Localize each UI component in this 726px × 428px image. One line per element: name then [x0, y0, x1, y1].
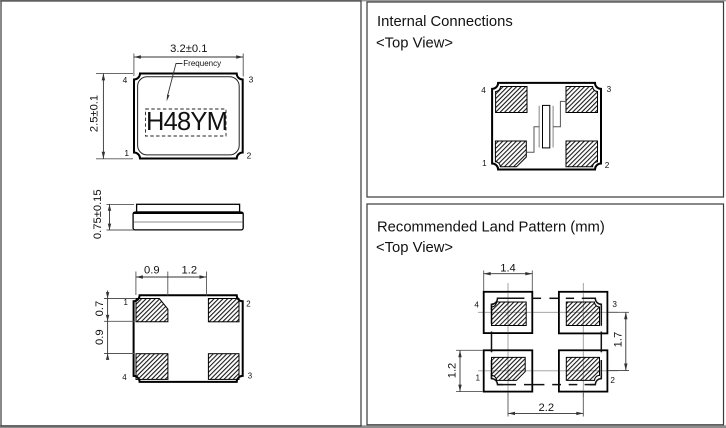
svg-text:2.2: 2.2 [539, 402, 555, 414]
svg-text:2: 2 [605, 161, 610, 170]
svg-text:Frequency: Frequency [183, 59, 221, 68]
svg-text:1: 1 [476, 374, 481, 383]
svg-text:4: 4 [123, 75, 128, 85]
svg-text:2: 2 [247, 150, 252, 160]
svg-text:1.2: 1.2 [447, 363, 459, 379]
svg-text:1.2: 1.2 [182, 265, 198, 277]
svg-text:4: 4 [122, 373, 127, 382]
svg-text:2: 2 [610, 376, 615, 385]
svg-text:1.4: 1.4 [500, 263, 516, 275]
svg-text:1: 1 [124, 148, 129, 158]
svg-text:Internal Connections: Internal Connections [377, 14, 513, 30]
svg-text:0.7: 0.7 [94, 301, 106, 317]
svg-text:3: 3 [248, 372, 253, 381]
svg-text:<Top View>: <Top View> [376, 240, 453, 256]
svg-text:4: 4 [481, 86, 486, 95]
svg-text:<Top View>: <Top View> [376, 35, 453, 51]
svg-text:1.7: 1.7 [613, 332, 625, 348]
svg-text:0.75±0.15: 0.75±0.15 [92, 189, 104, 239]
svg-text:3: 3 [612, 300, 617, 309]
svg-text:H48YM: H48YM [146, 108, 227, 136]
svg-text:4: 4 [474, 301, 479, 310]
svg-text:2.5±0.1: 2.5±0.1 [88, 95, 100, 132]
svg-text:3: 3 [607, 85, 612, 94]
svg-text:3: 3 [249, 75, 254, 85]
svg-text:0.9: 0.9 [94, 329, 106, 345]
svg-text:1: 1 [482, 159, 487, 168]
svg-text:Recommended Land Pattern (mm): Recommended Land Pattern (mm) [377, 219, 605, 235]
svg-text:1: 1 [124, 298, 128, 307]
svg-text:3.2±0.1: 3.2±0.1 [170, 43, 207, 55]
svg-text:2: 2 [246, 300, 250, 309]
svg-text:0.9: 0.9 [144, 265, 160, 277]
